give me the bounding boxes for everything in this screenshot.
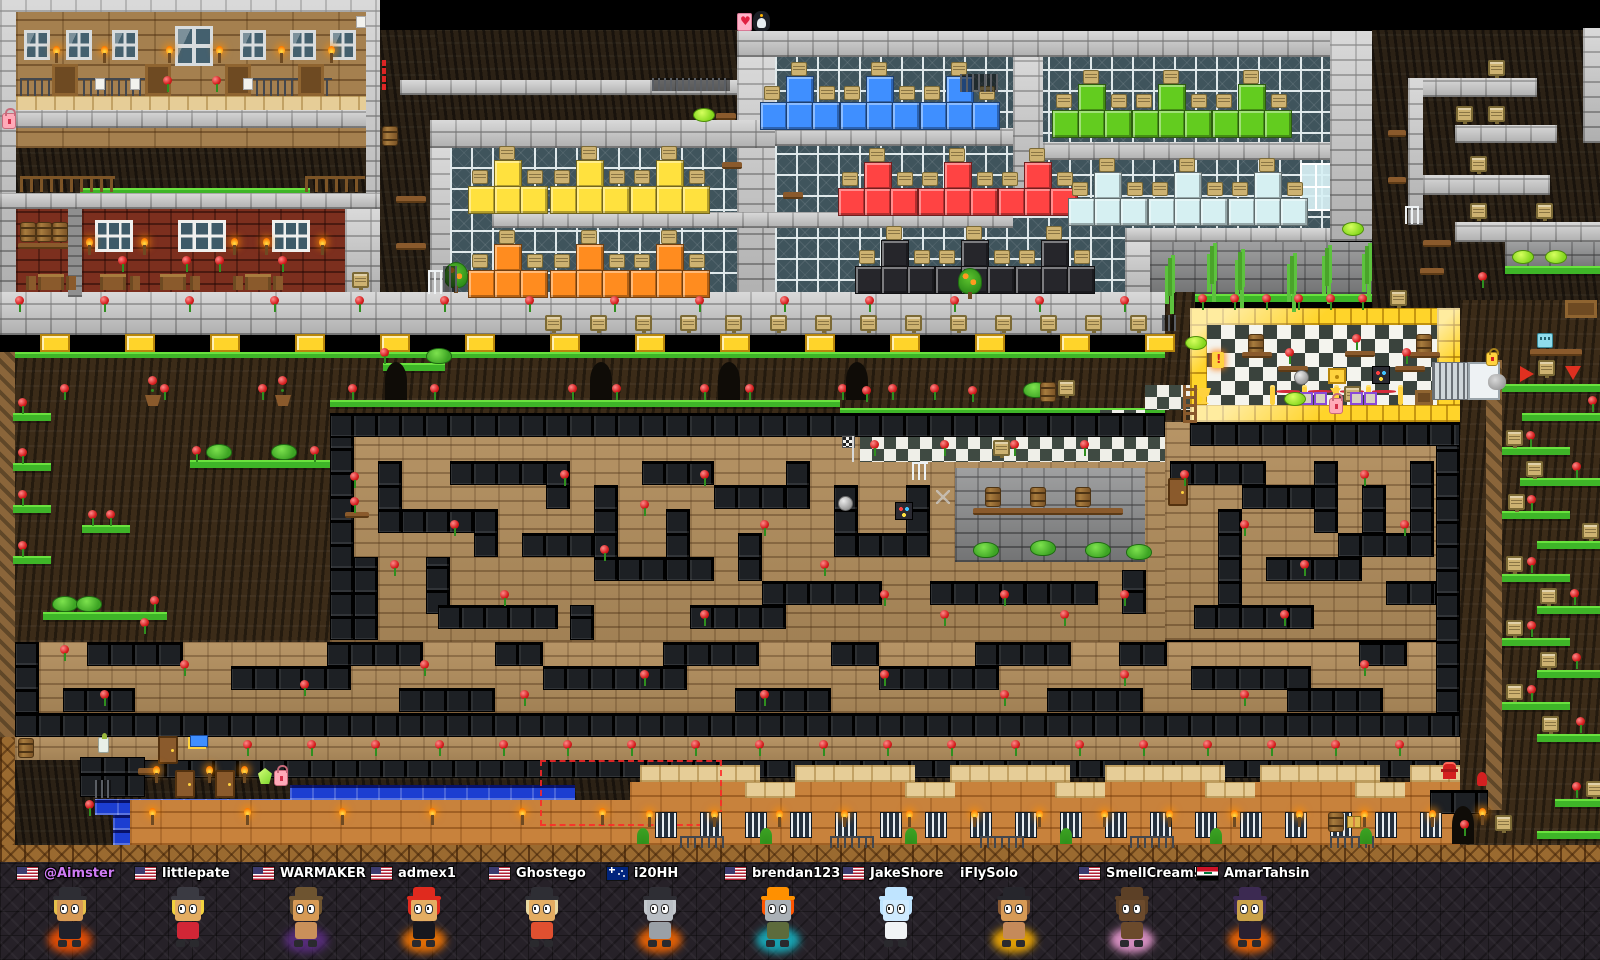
chair <box>26 276 36 290</box>
seat-block <box>520 186 548 214</box>
region-grass <box>1502 447 1570 455</box>
seat-block <box>1120 198 1148 226</box>
rose-flower <box>700 470 710 486</box>
wood-shelf <box>1395 366 1425 372</box>
avatar-body <box>885 922 907 939</box>
region-mazewall <box>15 713 1460 737</box>
rose-flower <box>1300 560 1310 576</box>
cluster-sign-icon <box>869 148 885 162</box>
rose-flower <box>880 590 890 606</box>
seat-block <box>656 244 684 272</box>
striped-window <box>1240 812 1262 838</box>
seat-block <box>682 186 710 214</box>
bamboo-plant <box>1168 258 1172 296</box>
player-avatar <box>986 887 1042 955</box>
rope-post <box>1270 387 1275 405</box>
avatar-body <box>531 922 553 939</box>
striped-window <box>1015 812 1037 838</box>
cluster-sign-icon <box>1179 158 1195 172</box>
seat-block <box>576 160 604 188</box>
rose-flower <box>15 296 25 312</box>
rose-flower <box>1402 348 1412 364</box>
cluster-sign-icon <box>1046 226 1062 240</box>
rose-flower <box>85 800 95 816</box>
rose-flower <box>180 660 190 676</box>
avatar-head <box>175 899 201 921</box>
barrel <box>20 222 36 242</box>
player-name-row: littlepate <box>134 865 250 881</box>
avatar-body <box>59 922 81 939</box>
seat-block <box>602 270 630 298</box>
rose-flower <box>1035 296 1045 312</box>
torch-icon <box>338 808 347 825</box>
region-wood <box>16 128 366 148</box>
striped-window <box>880 812 902 838</box>
maze-wall-block <box>666 509 690 581</box>
wooden-sign <box>770 315 787 331</box>
player-card: Ghostego <box>488 865 604 959</box>
avatar-eye <box>189 904 197 914</box>
cluster-sign-icon <box>924 86 940 100</box>
seat-block <box>881 266 909 294</box>
player-name: iFlySolo <box>960 866 1018 881</box>
seat-cluster-yellow <box>468 146 546 212</box>
player-name-row: @Aimster <box>16 865 132 881</box>
rose-flower <box>1360 660 1370 676</box>
cluster-sign-icon <box>949 148 965 162</box>
torch-icon <box>1478 808 1487 825</box>
table <box>160 274 186 290</box>
avatar-foot <box>898 940 907 947</box>
maze-wall-block <box>831 642 879 666</box>
rose-flower <box>700 384 710 400</box>
maze-wall-block <box>1314 461 1338 533</box>
seat-cluster-aqua <box>1148 158 1226 224</box>
rose-flower <box>930 384 940 400</box>
heartstone-block <box>737 13 752 31</box>
region-stone <box>1125 228 1330 242</box>
rose-flower <box>355 296 365 312</box>
wood-shelf <box>722 162 742 169</box>
avatar-hat-brim <box>761 896 795 900</box>
spider-web <box>936 490 950 504</box>
seat-block <box>864 188 892 216</box>
penguin-character <box>753 11 770 31</box>
region-grass <box>1502 511 1570 519</box>
maze-wall-block <box>879 666 999 690</box>
cluster-sign-icon <box>1127 182 1143 196</box>
player-name-row: SmellCream5 <box>1078 865 1194 881</box>
avatar-eye <box>1004 904 1012 914</box>
cluster-sign-icon <box>609 254 625 268</box>
cluster-sign-icon <box>886 226 902 240</box>
region-grass <box>1537 734 1600 742</box>
rose-flower <box>940 610 950 626</box>
player-name: SmellCream5 <box>1106 866 1203 881</box>
avatar-hat-brim <box>289 896 323 900</box>
region-grass <box>13 505 51 513</box>
region-mazebg <box>15 737 1460 762</box>
rose-flower <box>1198 294 1208 310</box>
avatar-body <box>177 922 199 939</box>
cluster-sign-icon <box>581 146 597 160</box>
bush <box>206 444 232 460</box>
avatar-foot <box>884 940 893 947</box>
cluster-sign-icon <box>1083 70 1099 84</box>
seat-block <box>944 188 972 216</box>
rose-flower <box>1527 557 1537 573</box>
region-stone <box>1330 31 1372 241</box>
rose-flower <box>1230 294 1240 310</box>
seat-block <box>1067 266 1095 294</box>
pink-lock-icon <box>2 113 16 129</box>
bamboo-plant <box>1210 246 1214 284</box>
seat-cluster-aqua <box>1068 158 1146 224</box>
avatar-head <box>529 899 555 921</box>
seat-block <box>468 270 496 298</box>
striped-window <box>1375 812 1397 838</box>
seat-block <box>494 244 522 272</box>
gold-block <box>210 334 240 352</box>
rose-flower <box>1478 272 1488 288</box>
region-sand <box>1105 765 1225 782</box>
maze-wall-block <box>1266 557 1362 581</box>
paper-note <box>130 78 140 90</box>
rose-flower <box>947 740 957 756</box>
player-avatar <box>868 887 924 955</box>
maze-wall-block <box>1047 688 1143 712</box>
barrel <box>1040 382 1056 402</box>
wooden-sign <box>1488 106 1505 122</box>
seat-block <box>855 266 883 294</box>
seat-block <box>864 162 892 190</box>
seat-block <box>1158 110 1186 138</box>
rose-flower <box>1000 590 1010 606</box>
jail-bars <box>1162 315 1176 331</box>
rose-flower <box>870 440 880 456</box>
player-avatar <box>632 887 688 955</box>
wooden-sign <box>545 315 562 331</box>
player-card: littlepate <box>134 865 250 959</box>
flag-us-icon <box>134 866 157 881</box>
maze-wall-block <box>231 666 351 690</box>
avatar-head <box>57 899 83 921</box>
seat-block <box>1052 110 1080 138</box>
torch-icon <box>905 810 914 827</box>
player-name-row: admex1 <box>370 865 486 881</box>
player-name: littlepate <box>162 866 230 881</box>
wooden-sign <box>1508 494 1525 510</box>
avatar-body <box>1003 922 1025 939</box>
cluster-sign-icon <box>472 254 488 268</box>
seat-block <box>656 186 684 214</box>
region-sand <box>950 765 1070 782</box>
maze-wall-block <box>594 485 618 581</box>
maze-wall-block <box>1386 581 1436 605</box>
potted-plant <box>760 828 772 844</box>
seat-cluster-orange <box>630 230 708 296</box>
barrel <box>18 738 34 758</box>
white-bars <box>1432 362 1468 400</box>
torch-icon <box>205 766 214 783</box>
wood-shelf <box>1388 130 1406 137</box>
sprout-trophy <box>98 737 109 753</box>
seat-block <box>1254 198 1282 226</box>
maze-wall-block <box>786 461 810 509</box>
wood-shelf <box>973 508 1123 515</box>
region-sand <box>1205 782 1255 798</box>
maze-wall-block <box>1287 688 1383 712</box>
cluster-sign-icon <box>554 254 570 268</box>
wooden-door <box>175 770 195 798</box>
rose-flower <box>755 740 765 756</box>
seat-cluster-orange <box>550 230 628 296</box>
rose-flower <box>1180 470 1190 486</box>
seat-block <box>866 76 894 104</box>
door-frame <box>1565 300 1597 318</box>
rose-flower <box>435 740 445 756</box>
rose-flower <box>150 596 160 612</box>
cluster-sign-icon <box>472 170 488 184</box>
seat-cluster-red <box>998 148 1076 214</box>
avatar-body <box>1239 922 1261 939</box>
region-grass <box>13 556 51 564</box>
seat-block <box>1132 110 1160 138</box>
torch-icon <box>1295 810 1304 827</box>
region-grass <box>1537 831 1600 839</box>
potted-plant <box>1210 828 1222 844</box>
maze-wall-block <box>1362 485 1386 533</box>
avatar-foot <box>780 940 789 947</box>
striped-window <box>655 812 677 838</box>
door-frame <box>1415 390 1433 405</box>
avatar-head <box>1001 899 1027 921</box>
seat-cluster-green <box>1132 70 1210 136</box>
region-grass <box>1505 266 1600 274</box>
region-grass <box>1502 574 1570 582</box>
player-card: brendan123 <box>724 865 840 959</box>
region-sand <box>1355 782 1405 798</box>
cluster-sign-icon <box>689 254 705 268</box>
cluster-sign-icon <box>1019 250 1035 264</box>
seat-block <box>840 102 868 130</box>
cluster-sign-icon <box>554 170 570 184</box>
rose-flower <box>215 256 225 272</box>
chair <box>233 276 243 290</box>
bush <box>1126 544 1152 560</box>
seat-block <box>1184 110 1212 138</box>
seat-block <box>1015 266 1043 294</box>
avatar-head <box>647 899 673 921</box>
rose-flower <box>880 670 890 686</box>
torch-icon <box>165 46 174 63</box>
table <box>38 274 64 290</box>
white-fence <box>428 270 444 294</box>
gold-block <box>550 334 580 352</box>
orange-tree <box>958 268 982 294</box>
avatar-foot <box>176 940 185 947</box>
maze-wall-block <box>663 642 759 666</box>
region-grass <box>1502 384 1600 392</box>
rose-flower <box>1000 690 1010 706</box>
torch-icon <box>518 808 527 825</box>
maze-wall-block <box>63 688 135 712</box>
bamboo-plant <box>1290 256 1294 294</box>
rose-flower <box>100 690 110 706</box>
torch-icon <box>152 766 161 783</box>
cluster-sign-icon <box>661 230 677 244</box>
torch-icon <box>645 810 654 827</box>
cluster-sign-icon <box>914 250 930 264</box>
potted-plant <box>637 828 649 844</box>
wood-shelf <box>716 113 736 120</box>
white-frame-window <box>178 220 226 252</box>
rose-flower <box>525 296 535 312</box>
pink-lock-icon <box>274 770 288 786</box>
player-name-row: JakeShore <box>842 865 958 881</box>
arrow-down-icon <box>1565 366 1581 388</box>
avatar-foot <box>294 940 303 947</box>
avatar-eye <box>768 904 776 914</box>
wooden-sign <box>1536 203 1553 219</box>
seat-block <box>1078 84 1106 112</box>
game-world-canvas[interactable] <box>0 0 1600 862</box>
window <box>66 30 92 60</box>
barrel <box>52 222 68 242</box>
player-card: WARMAKER <box>252 865 368 959</box>
region-grass <box>1537 541 1600 549</box>
flag-us-icon <box>252 866 275 881</box>
region-grass <box>82 525 130 533</box>
wood-shelf <box>1530 349 1582 356</box>
avatar-eye <box>661 904 669 914</box>
framed-item <box>1314 392 1327 405</box>
wooden-sign <box>1526 461 1543 477</box>
seat-block <box>890 188 918 216</box>
region-stone <box>16 110 366 128</box>
lock-boundary-line <box>382 60 386 90</box>
cluster-sign-icon <box>791 62 807 76</box>
avatar-head <box>1119 899 1145 921</box>
wooden-sign <box>860 315 877 331</box>
cluster-sign-icon <box>844 86 860 100</box>
seat-block <box>550 186 578 214</box>
rose-flower <box>100 296 110 312</box>
seat-block <box>1078 110 1106 138</box>
player-avatar <box>514 887 570 955</box>
avatar-body <box>413 922 435 939</box>
region-sand <box>905 782 955 798</box>
player-card: @Aimster <box>16 865 132 959</box>
seat-cluster-black <box>1015 226 1093 292</box>
potted-plant <box>905 828 917 844</box>
white-fence <box>912 462 928 480</box>
wooden-sign <box>1040 315 1057 331</box>
player-name: @Aimster <box>44 866 114 881</box>
seat-block <box>656 270 684 298</box>
door-frame <box>298 64 324 96</box>
rose-flower <box>819 740 829 756</box>
maze-wall-block <box>1191 666 1311 690</box>
gold-block <box>465 334 495 352</box>
seat-block <box>630 270 658 298</box>
avatar-body <box>767 922 789 939</box>
region-blue <box>290 785 575 800</box>
player-name: AmarTahsin <box>1224 866 1309 881</box>
white-fence <box>1405 206 1419 224</box>
white-frame-window <box>95 220 133 252</box>
wooden-sign <box>1058 380 1075 396</box>
checkpoint-flag-icon <box>842 436 854 462</box>
region-grass <box>1522 413 1600 421</box>
cluster-sign-icon <box>1002 172 1018 186</box>
seat-cluster-blue <box>760 62 838 128</box>
wooden-sign <box>995 315 1012 331</box>
rose-flower <box>18 541 28 557</box>
seat-block <box>576 270 604 298</box>
wooden-sign <box>1540 588 1557 604</box>
player-avatar <box>1104 887 1160 955</box>
maze-wall-block <box>330 413 1165 437</box>
avatar-head <box>411 899 437 921</box>
rose-flower <box>1267 740 1277 756</box>
rose-flower <box>888 384 898 400</box>
paper-note <box>95 78 105 90</box>
region-cave <box>380 30 437 310</box>
player-card: admex1 <box>370 865 486 959</box>
rose-flower <box>348 384 358 400</box>
rose-flower <box>865 296 875 312</box>
table <box>245 274 271 290</box>
region-dirttan <box>1486 360 1502 810</box>
glow-bush <box>1545 250 1567 264</box>
striped-window <box>925 812 947 838</box>
stone-ball <box>1294 370 1309 385</box>
cluster-sign-icon <box>527 254 543 268</box>
region-stone <box>430 120 775 148</box>
flag-us-icon <box>370 866 393 881</box>
rose-flower <box>760 690 770 706</box>
flag-us-icon <box>724 866 747 881</box>
rose-flower <box>1352 334 1362 350</box>
region-stone <box>1408 78 1423 225</box>
potted-plant <box>1360 828 1372 844</box>
rose-flower <box>1280 610 1290 626</box>
wooden-sign <box>1538 360 1555 376</box>
gold-block <box>295 334 325 352</box>
wooden-sign <box>1542 716 1559 732</box>
rose-flower <box>520 690 530 706</box>
seat-cluster-blue <box>840 62 918 128</box>
torch-icon <box>1428 810 1437 827</box>
avatar-head <box>1237 899 1263 921</box>
torch-icon <box>230 238 239 255</box>
cluster-sign-icon <box>899 86 915 100</box>
table <box>100 274 126 290</box>
chair <box>130 276 140 290</box>
flag-us-icon <box>842 866 865 881</box>
rose-flower <box>258 384 268 400</box>
maze-wall-block <box>735 688 831 712</box>
seat-block <box>576 244 604 272</box>
ladder <box>1183 385 1197 423</box>
rose-pot <box>143 376 163 406</box>
seat-cluster-orange <box>468 230 546 296</box>
player-name: Ghostego <box>516 866 586 881</box>
wooden-sign <box>635 315 652 331</box>
seat-block <box>468 186 496 214</box>
maze-wall-block <box>378 461 402 533</box>
